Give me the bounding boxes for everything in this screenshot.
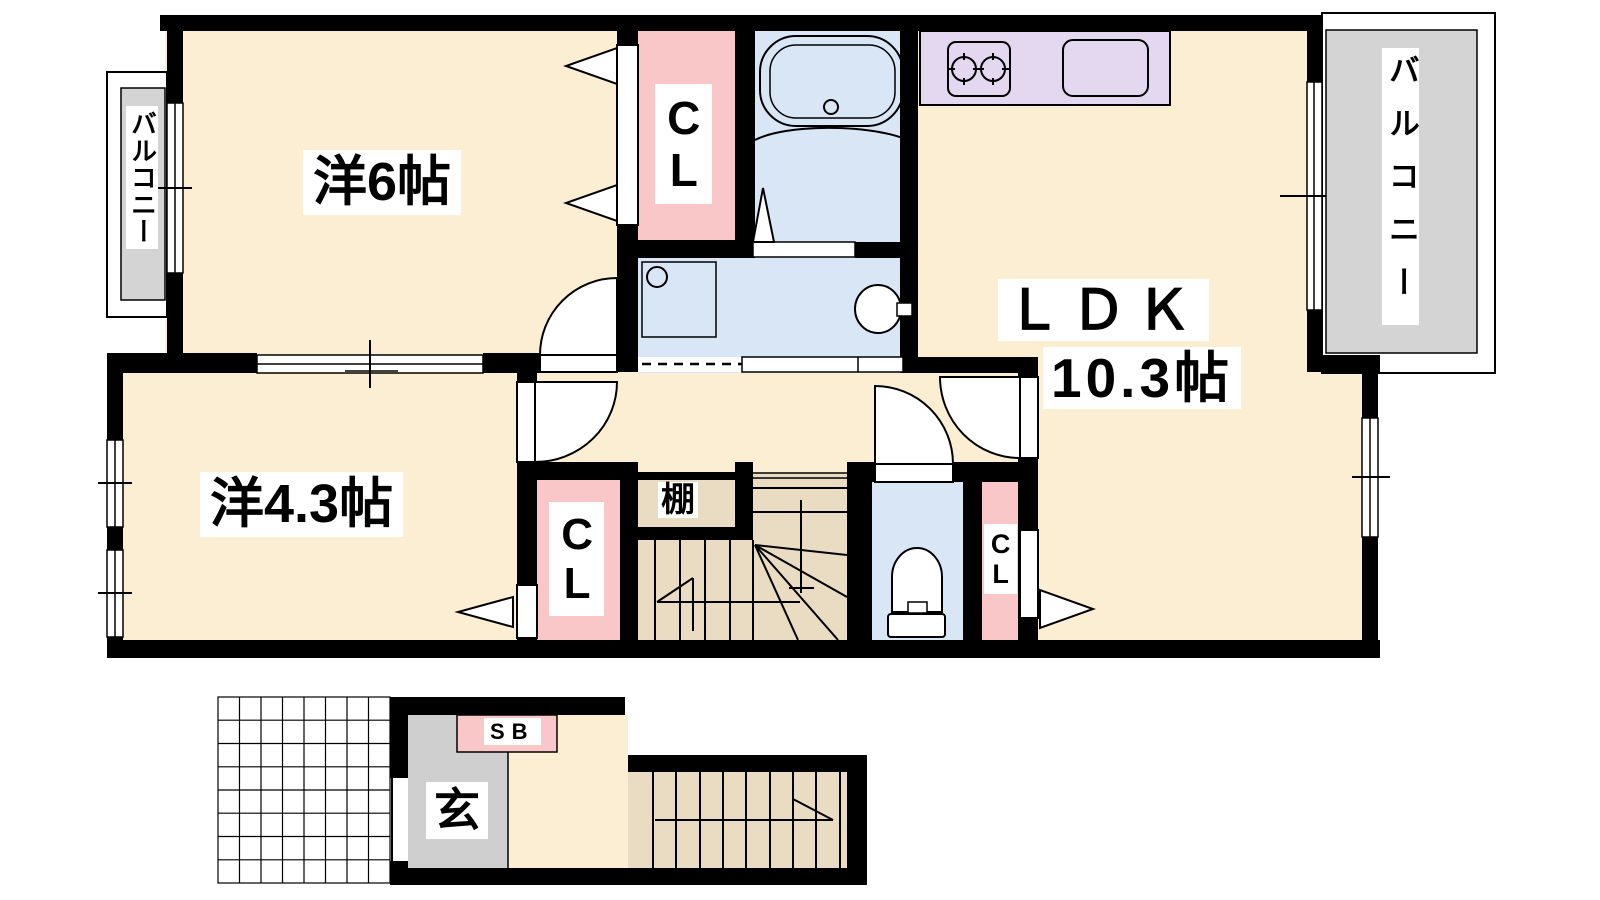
label-room-western6: 洋6帖	[303, 150, 461, 215]
wall	[107, 527, 123, 550]
label-balcony-left: バルコニー	[126, 106, 158, 249]
wall	[167, 273, 183, 357]
label-shoebox: SB	[484, 718, 541, 745]
label-closet-top: CL	[655, 84, 712, 204]
wall	[735, 15, 755, 258]
wall	[483, 353, 540, 373]
wall	[1307, 355, 1380, 372]
label-room-western43: 洋4.3帖	[200, 472, 403, 537]
wall	[620, 480, 638, 640]
label-genkan: 玄	[426, 782, 488, 839]
wall	[1307, 310, 1322, 355]
wall	[903, 357, 1038, 373]
wall	[608, 755, 867, 772]
wall	[963, 462, 982, 640]
label-closet-right: CL	[984, 524, 1017, 594]
label-ldk-size: 10.3帖	[1043, 347, 1241, 409]
wall	[107, 373, 123, 440]
sliding-door-bathroom	[753, 242, 855, 257]
label-shelf: 棚	[658, 482, 698, 518]
label-balcony-right: バルコニー	[1382, 48, 1419, 325]
entrance-tiles	[218, 697, 390, 883]
kitchen-counter	[920, 31, 1170, 105]
wall	[390, 697, 625, 715]
wall	[390, 697, 408, 777]
wall	[517, 373, 537, 382]
toilet-icon	[888, 548, 945, 637]
sliding-door-washroom	[638, 357, 903, 372]
stairs-1f	[628, 772, 847, 868]
wall	[638, 472, 735, 480]
floorplan-drawing	[0, 0, 1600, 900]
wall	[638, 240, 755, 258]
wall	[1362, 372, 1378, 418]
wall	[638, 527, 753, 540]
floorplan-canvas: 洋6帖 洋4.3帖 ＬＤＫ 10.3帖 CL CL CL 棚 バルコニー バルコ…	[0, 0, 1600, 900]
wall	[390, 868, 867, 885]
label-closet-bottomleft: CL	[549, 502, 604, 616]
wall	[1362, 537, 1378, 640]
bathroom-floor	[755, 15, 905, 258]
label-ldk-name: ＬＤＫ	[998, 279, 1209, 341]
wall	[167, 31, 183, 103]
wall	[107, 640, 1380, 658]
wall	[847, 462, 872, 640]
wall	[1307, 31, 1322, 82]
wall	[537, 462, 638, 480]
wall	[855, 242, 905, 258]
wall	[107, 353, 257, 373]
